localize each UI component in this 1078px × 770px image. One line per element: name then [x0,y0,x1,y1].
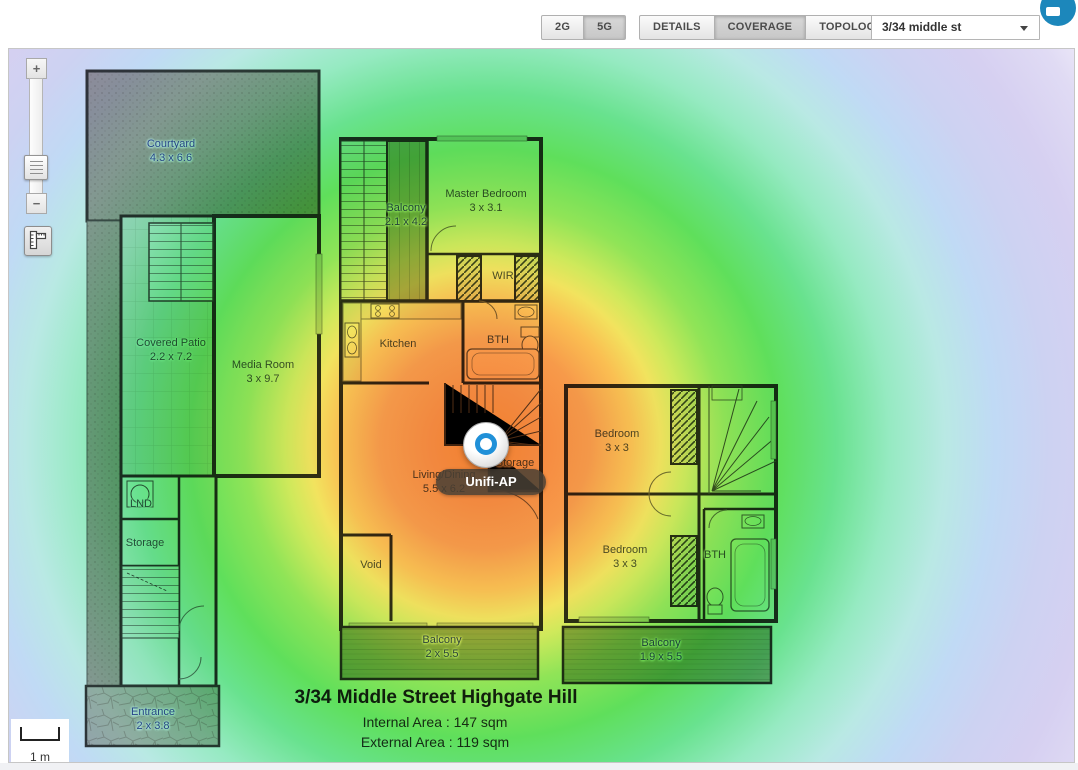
measure-tool-button[interactable] [24,226,52,256]
view-button-group: DETAILS COVERAGE TOPOLOGY [639,15,897,40]
coverage-map-canvas[interactable]: Courtyard4.3 x 6.6 Balcony2.1 x 4.2 Mast… [8,48,1075,763]
ruler-icon [29,230,47,250]
zoom-in-button[interactable]: + [26,58,47,79]
unifi-logo-icon [475,433,497,455]
band-button-group: 2G 5G [541,15,626,40]
band-5g-button[interactable]: 5G [583,15,626,40]
map-select-value: 3/34 middle st [882,20,961,34]
coverage-button[interactable]: COVERAGE [714,15,807,40]
zoom-slider-handle[interactable] [24,155,48,180]
unifi-ap-marker[interactable] [463,422,509,468]
toolbar: 2G 5G DETAILS COVERAGE TOPOLOGY 3/34 mid… [0,0,1078,48]
scale-bar [18,724,62,744]
zoom-out-button[interactable]: − [26,193,47,214]
map-scale: 1 m [11,719,69,762]
band-2g-button[interactable]: 2G [541,15,584,40]
scale-label: 1 m [11,750,69,763]
zoom-control: + − [26,58,47,214]
page-bottom-strip [0,763,1078,770]
grip-lines-icon [30,161,43,174]
ap-tooltip: Unifi-AP [436,469,546,495]
chat-bubble-icon[interactable] [1040,0,1076,26]
details-button[interactable]: DETAILS [639,15,715,40]
chevron-down-icon [1020,26,1028,31]
coverage-heatmap [9,49,1074,762]
map-select-dropdown[interactable]: 3/34 middle st [871,15,1040,40]
app-window: { "header": { "band_buttons": [ {"label"… [0,0,1078,770]
